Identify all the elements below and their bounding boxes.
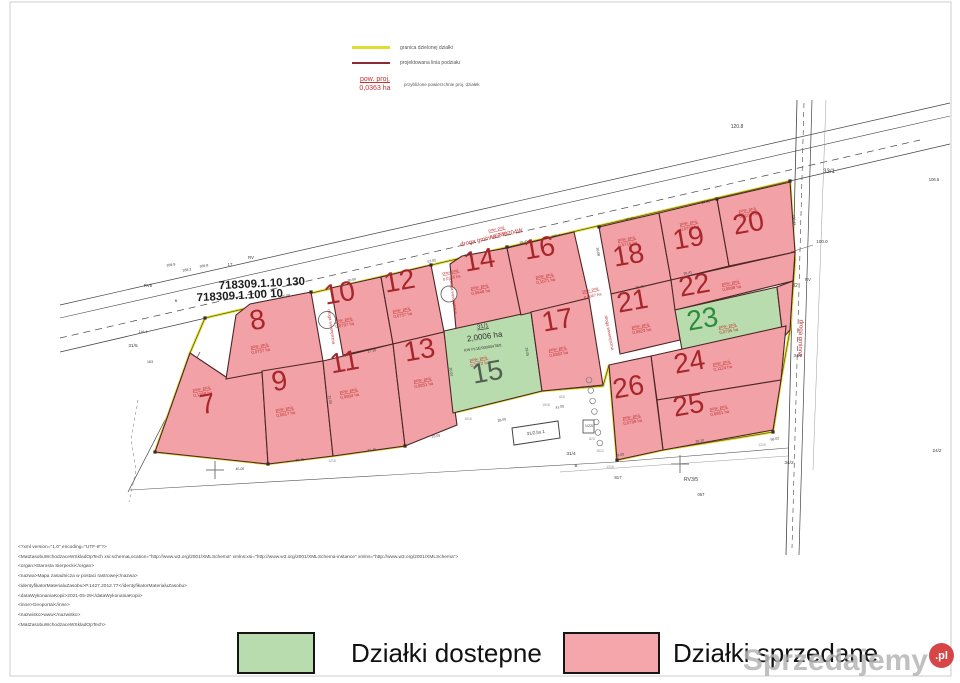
xml-line: <?xml version="1.0" encoding="UTF-8"?> — [18, 543, 458, 553]
xml-line: <dataWykonaniaKopii>2021-05-29</dataWyko… — [18, 592, 458, 602]
annotation: 24/2 — [933, 448, 942, 453]
annotation: 41.05 — [555, 404, 564, 410]
road-line — [790, 144, 950, 181]
annotation: 169.9 — [166, 262, 175, 267]
annotation: 30.08 — [595, 247, 600, 256]
annotation: 1216 — [606, 465, 614, 469]
division-line-sample — [352, 62, 390, 64]
boundary-point — [715, 197, 718, 200]
area-symbol-sample: pow. proj. 0,0363 ha — [352, 75, 398, 93]
point-circle — [590, 398, 596, 404]
point-circle — [592, 409, 598, 415]
sprzedajemy-watermark: Sprzedajemy .pl — [743, 646, 954, 676]
annotation: 1/22i — [585, 424, 593, 428]
division-line-label: projektowana linia podziału — [400, 60, 460, 66]
plot-number: 19 — [670, 220, 706, 256]
annotation: 34/2 — [784, 460, 794, 466]
plot-number: 13 — [401, 332, 437, 368]
legend-area-row: pow. proj. 0,0363 ha przybliżone powierz… — [352, 75, 632, 93]
watermark-pl-text: .pl — [935, 650, 948, 662]
boundary-point — [309, 290, 312, 293]
boundary-point — [153, 450, 156, 453]
annotation: 28.05 — [497, 417, 506, 423]
annotation: 1518 — [542, 403, 550, 407]
annotation: 32 — [792, 283, 798, 289]
annotation: B — [175, 298, 178, 303]
annotation: 1215 — [328, 459, 336, 463]
annotation: 33/1 — [823, 169, 835, 175]
plot-number: 25 — [670, 387, 706, 423]
annotation: 818 — [559, 395, 565, 399]
annotation: 163 — [147, 360, 153, 364]
xml-line: <MatZasobuWchodzaceWSkladOpTech> — [18, 621, 458, 631]
annotation: RV3/5 — [684, 477, 698, 483]
watermark-pl-badge: .pl — [929, 643, 954, 668]
annotation: 58.02 — [770, 436, 779, 442]
annotation: 45.05 — [235, 467, 244, 471]
boundary-point — [788, 179, 791, 182]
annotation: 25.05 — [431, 433, 440, 438]
plot-number: 23 — [684, 301, 720, 337]
annotation: 39.45 — [295, 458, 304, 463]
road-line — [813, 100, 826, 470]
xml-metadata-block: <?xml version="1.0" encoding="UTF-8"?><M… — [18, 543, 458, 630]
annotation: RV — [248, 255, 254, 260]
plot-number: 15 — [469, 354, 505, 390]
available-label: Działki dostepne — [351, 638, 542, 669]
area-symbol-description: przybliżone powierzchnie proj. działek — [404, 82, 480, 87]
area-symbol-title: pow. proj. — [352, 75, 398, 84]
annotation: 17 — [228, 262, 233, 267]
annotation: 1515 — [464, 417, 472, 421]
available-color-swatch — [237, 632, 315, 674]
plot-number: 24 — [671, 344, 707, 380]
annotation: 31/4 — [566, 451, 576, 457]
watermark-text: Sprzedajemy — [743, 646, 928, 676]
annotation: 057 — [698, 492, 706, 497]
plot-number: 11 — [327, 344, 361, 380]
boundary-point — [505, 245, 508, 248]
map-legend: granica dzielonej działki projektowana l… — [352, 40, 632, 93]
xml-line: <nazwisko>www</nazwisko> — [18, 611, 458, 621]
annotation: 1512 — [596, 449, 604, 453]
plot-number: 20 — [730, 205, 766, 241]
plot-number: 12 — [381, 263, 417, 299]
plot-number: 14 — [461, 242, 497, 278]
plot-number: 21 — [614, 283, 650, 319]
boundary-point — [266, 462, 269, 465]
area-symbol-value: 0,0363 ha — [352, 84, 398, 93]
boundary-point — [429, 263, 432, 266]
boundary-point — [597, 225, 600, 228]
annotation: 168.2 — [182, 267, 191, 272]
xml-line: <inne>Geoportal</inne> — [18, 601, 458, 611]
boundary-point — [615, 458, 618, 461]
plot-number: 26 — [610, 369, 646, 405]
annotation: 106.5 — [929, 177, 940, 182]
available-legend-item: Działki dostepne — [237, 632, 542, 674]
xml-line: <identyfikatorMaterialuZasobu>P.1427.201… — [18, 582, 458, 592]
boundary-point — [203, 316, 206, 319]
annotation: droga wewnętrzna — [604, 315, 616, 351]
annotation: 120.8 — [731, 124, 744, 130]
annotation: 31.45 — [367, 447, 376, 452]
annotation: droga gminna — [796, 320, 803, 358]
annotation: 100.0 — [816, 239, 828, 244]
annotation: 1219 — [758, 443, 766, 447]
plot-number: 17 — [539, 302, 575, 338]
legend-boundary-row: granica dzielonej działki — [352, 40, 632, 55]
annotation: 34/2 — [794, 353, 803, 358]
boundary-line-sample — [352, 46, 390, 49]
annotation: 116.4 — [139, 330, 148, 334]
point-circle — [595, 430, 601, 436]
annotation: 817 — [614, 475, 622, 480]
legend-division-row: projektowana linia podziału — [352, 55, 632, 70]
annotation: 169.8 — [199, 263, 208, 268]
annotation: 31/5 — [128, 343, 138, 349]
annotation: RVb — [144, 283, 153, 288]
annotation: B — [575, 463, 578, 468]
sold-color-swatch — [563, 632, 660, 674]
plot-number: 22 — [676, 267, 712, 303]
boundary-line-label: granica dzielonej działki — [400, 45, 453, 51]
plot-number: 18 — [610, 237, 646, 273]
boundary-point — [771, 430, 774, 433]
xml-line: <organ>Starosta Sierpecki</organ> — [18, 562, 458, 572]
annotation: 823 — [589, 437, 595, 441]
land-plot-map-sheet: pow. proj.0,1358 ha7pow. proj.0,0757 ha8… — [0, 0, 960, 683]
boundary-point — [403, 444, 406, 447]
xml-line: <nazwa>Mapa zasadnicza w postaci rastrow… — [18, 572, 458, 582]
point-circle — [588, 388, 594, 394]
point-circle — [597, 440, 603, 446]
annotation: RV — [805, 277, 811, 282]
xml-line: <MatZasobuWchodzaceWSkladOpTech xsi:sche… — [18, 553, 458, 563]
